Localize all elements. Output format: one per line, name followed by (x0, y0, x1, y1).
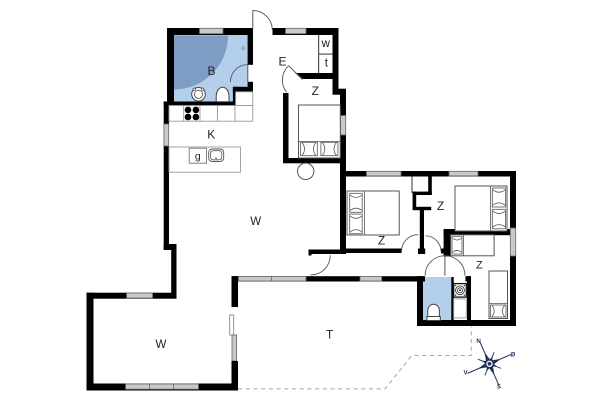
svg-text:Z: Z (378, 233, 385, 247)
svg-text:Z: Z (476, 260, 483, 272)
svg-text:T: T (326, 330, 333, 342)
svg-text:W: W (155, 339, 166, 351)
svg-text:g: g (195, 151, 201, 163)
svg-text:B: B (207, 64, 215, 78)
svg-text:w: w (321, 38, 331, 50)
svg-text:N: N (476, 338, 481, 345)
svg-text:E: E (278, 54, 286, 68)
svg-text:Ø: Ø (510, 352, 515, 359)
svg-text:S: S (497, 384, 501, 391)
svg-text:W: W (250, 216, 261, 228)
svg-text:Z: Z (312, 84, 319, 98)
svg-text:Z: Z (437, 199, 444, 213)
svg-text:K: K (207, 128, 215, 142)
